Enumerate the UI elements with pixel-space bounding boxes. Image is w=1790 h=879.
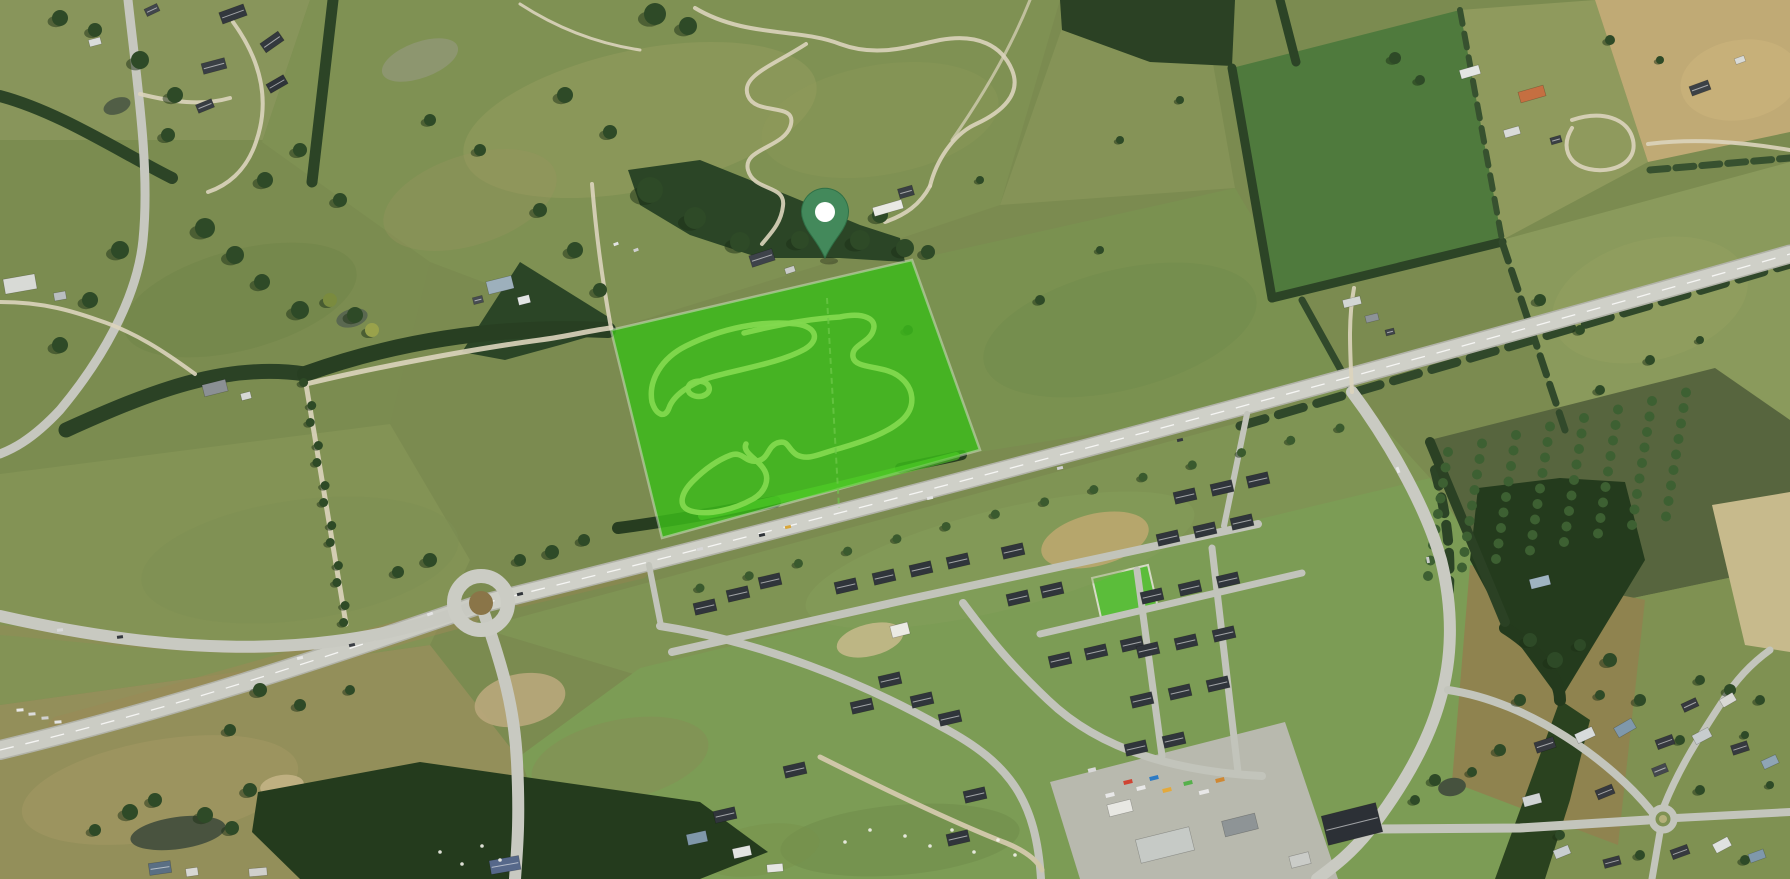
orchard-tree	[1674, 434, 1684, 444]
tree	[1523, 633, 1537, 647]
tree	[514, 554, 526, 566]
orchard-tree	[1613, 405, 1623, 415]
tree	[1389, 52, 1401, 64]
sheep	[480, 844, 484, 848]
roundabout-island	[469, 591, 493, 615]
tree	[52, 10, 68, 26]
orchard-tree	[1645, 412, 1655, 422]
tree	[1514, 694, 1526, 706]
tree	[225, 821, 239, 835]
sheep	[903, 834, 907, 838]
vehicle	[54, 720, 61, 724]
tree	[197, 807, 213, 823]
sheep	[1013, 853, 1017, 857]
tree	[679, 17, 697, 35]
tree	[603, 125, 617, 139]
tree	[52, 337, 68, 353]
tree	[226, 246, 244, 264]
tree	[1603, 653, 1617, 667]
orchard-tree	[1443, 447, 1453, 457]
tree	[991, 510, 1000, 519]
tree	[341, 601, 350, 610]
tree	[942, 522, 951, 531]
tree	[334, 561, 343, 570]
tree	[253, 683, 267, 697]
tree	[293, 143, 307, 157]
pin-dot	[815, 202, 835, 222]
tree	[1139, 473, 1148, 482]
orchard-tree	[1460, 547, 1470, 557]
tree	[423, 553, 437, 567]
tree	[1089, 485, 1098, 494]
tree	[161, 128, 175, 142]
tree	[254, 274, 270, 290]
orchard-tree	[1533, 499, 1543, 509]
tree	[1634, 694, 1646, 706]
orchard-tree	[1501, 492, 1511, 502]
tree	[323, 293, 337, 307]
orchard-tree	[1669, 465, 1679, 475]
orchard-tree	[1511, 430, 1521, 440]
tree	[1429, 774, 1441, 786]
pin-shadow	[820, 258, 838, 265]
orchard-tree	[1567, 491, 1577, 501]
orchard-tree	[1540, 453, 1550, 463]
orchard-tree	[1569, 475, 1579, 485]
vehicle	[16, 708, 23, 712]
tree	[327, 521, 336, 530]
building-roof	[53, 291, 66, 301]
tree	[365, 323, 379, 337]
tree	[545, 545, 559, 559]
tree	[299, 378, 308, 387]
tree	[195, 218, 215, 238]
orchard-tree	[1504, 477, 1514, 487]
orchard-tree	[1457, 563, 1467, 573]
orchard-tree	[1472, 470, 1482, 480]
tree	[424, 114, 436, 126]
building	[186, 867, 199, 877]
orchard-tree	[1611, 420, 1621, 430]
vehicle	[41, 716, 48, 720]
tree	[167, 87, 183, 103]
tree	[593, 283, 607, 297]
satellite-map-viewport[interactable]	[0, 0, 1790, 879]
orchard-tree	[1462, 532, 1472, 542]
orchard-tree	[1574, 444, 1584, 454]
orchard-tree	[1441, 463, 1451, 473]
sheep	[438, 850, 442, 854]
orchard-tree	[1530, 515, 1540, 525]
tree	[1645, 355, 1655, 365]
tree	[843, 547, 852, 556]
tree	[1755, 695, 1765, 705]
building-roof	[249, 867, 268, 877]
orchard-tree	[1630, 505, 1640, 515]
tree	[1695, 675, 1705, 685]
tree	[332, 578, 341, 587]
tree	[1286, 436, 1295, 445]
tree	[1635, 850, 1645, 860]
orchard-tree	[1661, 512, 1671, 522]
tree	[745, 571, 754, 580]
orchard-tree	[1438, 478, 1448, 488]
tree	[314, 441, 323, 450]
orchard-tree	[1598, 498, 1608, 508]
orchard-tree	[1627, 520, 1637, 530]
tree	[1595, 385, 1605, 395]
orchard-tree	[1603, 467, 1613, 477]
tree	[1555, 830, 1565, 840]
sheep	[996, 838, 1000, 842]
tree	[794, 559, 803, 568]
tree	[347, 307, 363, 323]
tree	[791, 231, 809, 249]
orchard-tree	[1671, 450, 1681, 460]
orchard-tree	[1681, 388, 1691, 398]
orchard-tree	[1436, 494, 1446, 504]
building	[53, 291, 66, 301]
tree	[1696, 336, 1704, 344]
orchard-tree	[1467, 501, 1477, 511]
tree	[1336, 424, 1345, 433]
tree	[1410, 795, 1420, 805]
tree	[567, 242, 583, 258]
building-roof	[186, 867, 199, 877]
tree	[1656, 56, 1664, 64]
orchard-tree	[1577, 429, 1587, 439]
tree	[696, 584, 705, 593]
orchard-tree	[1477, 439, 1487, 449]
orchard-tree	[1470, 485, 1480, 495]
orchard-tree	[1632, 489, 1642, 499]
tree	[319, 498, 328, 507]
orchard-tree	[1545, 422, 1555, 432]
tree	[637, 177, 663, 203]
tree	[82, 292, 98, 308]
orchard-tree	[1640, 443, 1650, 453]
tree	[1467, 767, 1477, 777]
tree	[1574, 639, 1586, 651]
tree	[339, 618, 348, 627]
orchard-tree	[1475, 454, 1485, 464]
tree	[392, 566, 404, 578]
tree	[224, 724, 236, 736]
orchard-tree	[1559, 537, 1569, 547]
orchard-tree	[1465, 516, 1475, 526]
orchard-tree	[1637, 458, 1647, 468]
orchard-tree	[1538, 468, 1548, 478]
tree	[474, 144, 486, 156]
tree	[89, 824, 101, 836]
tree	[644, 3, 666, 25]
tree	[306, 418, 315, 427]
sheep	[498, 858, 502, 862]
tree	[307, 401, 316, 410]
orchard-tree	[1679, 403, 1689, 413]
tree	[326, 538, 335, 547]
orchard-tree	[1579, 413, 1589, 423]
orchard-tree	[1491, 554, 1501, 564]
tree	[321, 481, 330, 490]
orchard-tree	[1642, 427, 1652, 437]
orchard-tree	[1562, 522, 1572, 532]
sheep	[972, 850, 976, 854]
orchard-tree	[1543, 437, 1553, 447]
tree	[730, 232, 750, 252]
orchard-tree	[1635, 474, 1645, 484]
tree	[333, 193, 347, 207]
orchard-tree	[1496, 523, 1506, 533]
tree	[896, 239, 914, 257]
tree	[684, 207, 706, 229]
building	[249, 867, 268, 877]
building	[767, 863, 784, 872]
orchard-tree	[1647, 396, 1657, 406]
orchard-tree	[1509, 446, 1519, 456]
tree	[1040, 497, 1049, 506]
orchard-tree	[1606, 451, 1616, 461]
tree	[921, 245, 935, 259]
orchard-tree	[1572, 460, 1582, 470]
tree	[892, 534, 901, 543]
orchard-tree	[1433, 509, 1443, 519]
roundabout-island	[1659, 815, 1667, 823]
vehicle	[28, 712, 35, 716]
tree	[850, 230, 870, 250]
tree	[1575, 325, 1585, 335]
tree	[131, 51, 149, 69]
tree	[148, 793, 162, 807]
tree	[1547, 652, 1563, 668]
orchard-tree	[1528, 530, 1538, 540]
tree	[1605, 35, 1615, 45]
orchard-tree	[1664, 496, 1674, 506]
tree	[557, 87, 573, 103]
orchard-tree	[1499, 508, 1509, 518]
tree	[294, 699, 306, 711]
tree	[1237, 448, 1246, 457]
tree	[1595, 690, 1605, 700]
tree	[312, 458, 321, 467]
orchard-tree	[1525, 546, 1535, 556]
tree	[578, 534, 590, 546]
tree	[533, 203, 547, 217]
orchard-tree	[1601, 482, 1611, 492]
tree	[1096, 246, 1104, 254]
orchard-tree	[1494, 539, 1504, 549]
tree	[976, 176, 984, 184]
orchard-tree	[1535, 484, 1545, 494]
tree	[1534, 294, 1546, 306]
orchard-tree	[1666, 481, 1676, 491]
tree	[1116, 136, 1124, 144]
satellite-map	[0, 0, 1790, 879]
orchard-tree	[1564, 506, 1574, 516]
tree	[1035, 295, 1045, 305]
sheep	[460, 862, 464, 866]
tree	[1494, 744, 1506, 756]
orchard-tree	[1596, 513, 1606, 523]
orchard-tree	[1423, 571, 1433, 581]
tree	[1766, 781, 1774, 789]
sheep	[843, 840, 847, 844]
tree	[345, 685, 355, 695]
tree	[111, 241, 129, 259]
orchard-tree	[1676, 419, 1686, 429]
sheep	[928, 844, 932, 848]
tree	[1675, 735, 1685, 745]
building-roof	[767, 863, 784, 872]
orchard-tree	[1593, 529, 1603, 539]
tree	[1188, 460, 1197, 469]
tree	[243, 783, 257, 797]
tree	[1695, 785, 1705, 795]
tree	[257, 172, 273, 188]
tree	[1415, 75, 1425, 85]
tree	[1741, 731, 1749, 739]
tree	[291, 301, 309, 319]
tree	[88, 23, 102, 37]
tree	[122, 804, 138, 820]
orchard-tree	[1608, 436, 1618, 446]
sheep	[868, 828, 872, 832]
sheep	[950, 828, 954, 832]
tree	[1176, 96, 1184, 104]
orchard-tree	[1506, 461, 1516, 471]
